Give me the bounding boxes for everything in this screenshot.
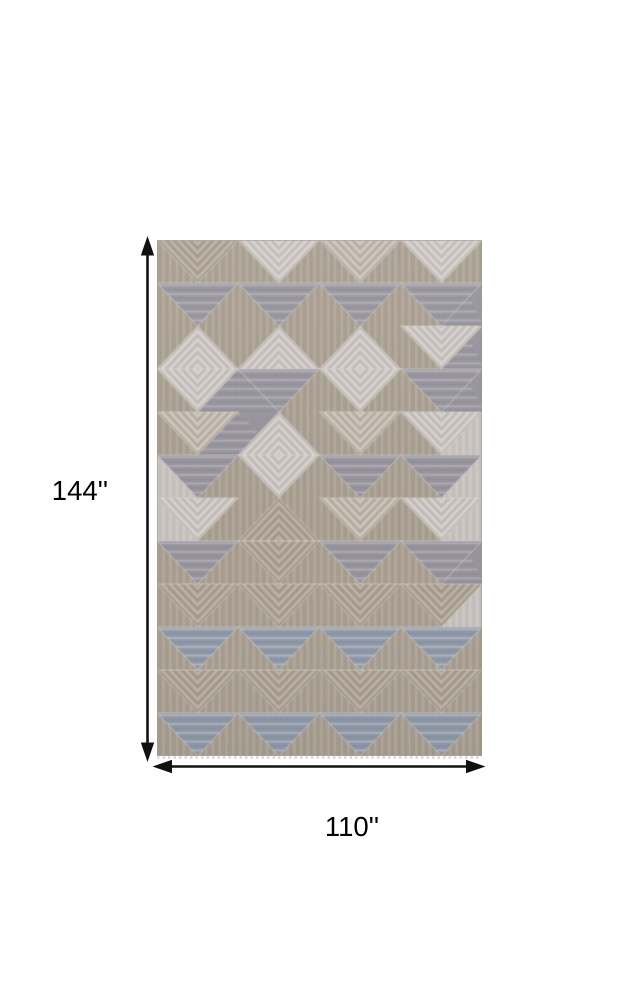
svg-text:144'': 144'' bbox=[52, 475, 108, 506]
svg-text:110'': 110'' bbox=[325, 811, 379, 842]
